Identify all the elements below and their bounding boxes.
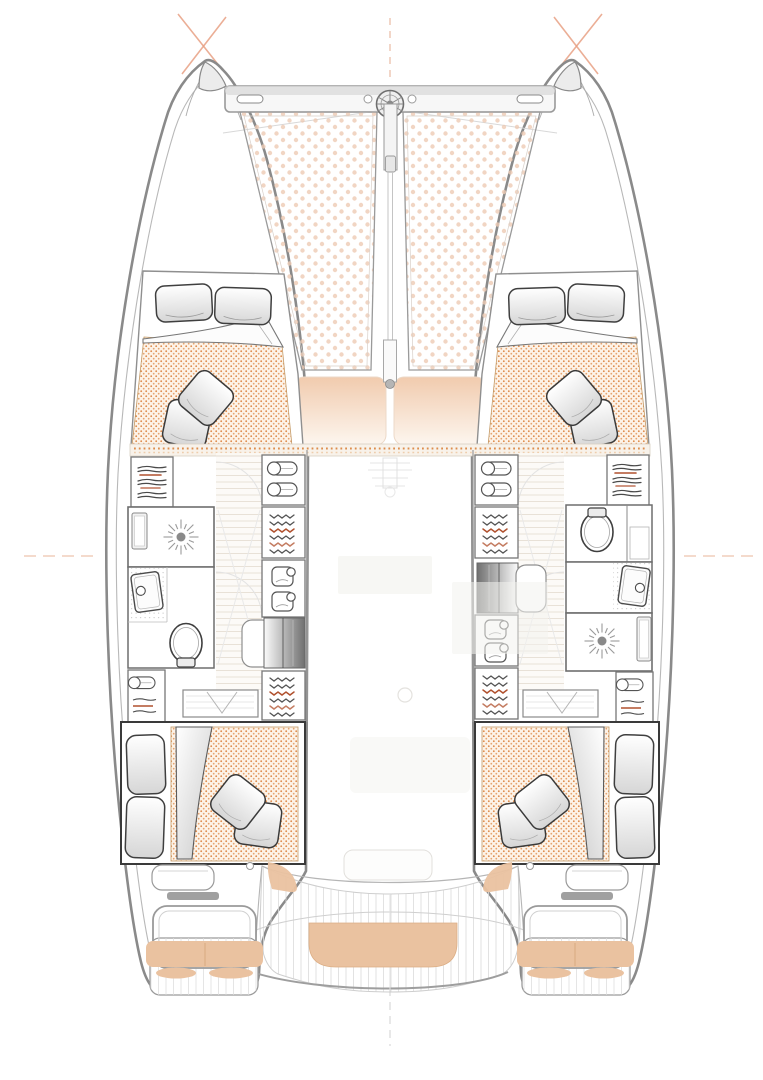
forward-cabin-port xyxy=(131,271,303,450)
sink-port xyxy=(130,571,163,613)
head-port xyxy=(128,567,214,668)
cabinet-towels-starboard xyxy=(475,455,518,505)
beam-handle-port xyxy=(237,95,263,103)
hanging-locker-port-2 xyxy=(262,671,305,720)
shower-room-starboard xyxy=(566,613,652,671)
hanging-locker-starboard-2 xyxy=(475,668,518,719)
cabinet-towels-port xyxy=(262,455,305,505)
cabinet-starboard-aft xyxy=(616,672,653,722)
cabinet-bins-port xyxy=(262,560,305,617)
shower-drain-icon xyxy=(164,520,199,555)
aft-cabin-port xyxy=(121,722,305,864)
head-starboard xyxy=(566,505,652,613)
mast-step xyxy=(384,340,397,382)
shower-drain-icon xyxy=(585,624,620,659)
vanity-desk-port xyxy=(183,690,258,717)
beam-handle-starboard xyxy=(517,95,543,103)
catamaran-floor-plan xyxy=(0,0,763,1080)
cabinet-port-aft xyxy=(128,670,165,722)
bowsprit xyxy=(384,104,397,370)
coachroof-band xyxy=(130,444,650,456)
cockpit-center-bench xyxy=(309,923,457,967)
port-hull-interior xyxy=(128,450,307,722)
hanging-locker-port-1 xyxy=(262,507,305,558)
sink-starboard xyxy=(618,565,651,607)
aft-cabin-starboard xyxy=(475,722,659,864)
sunpad-port xyxy=(294,377,386,445)
forward-cabin-starboard xyxy=(477,271,649,450)
wardrobe-shelf-port-fwd xyxy=(131,457,173,507)
vanity-desk-starboard xyxy=(523,690,598,717)
companionway-steps-port xyxy=(242,618,305,668)
sunpad-starboard xyxy=(394,377,486,445)
wardrobe-shelf-starboard-fwd xyxy=(607,455,649,507)
shower-room-port xyxy=(128,507,214,567)
hanging-locker-starboard-1 xyxy=(475,507,518,558)
